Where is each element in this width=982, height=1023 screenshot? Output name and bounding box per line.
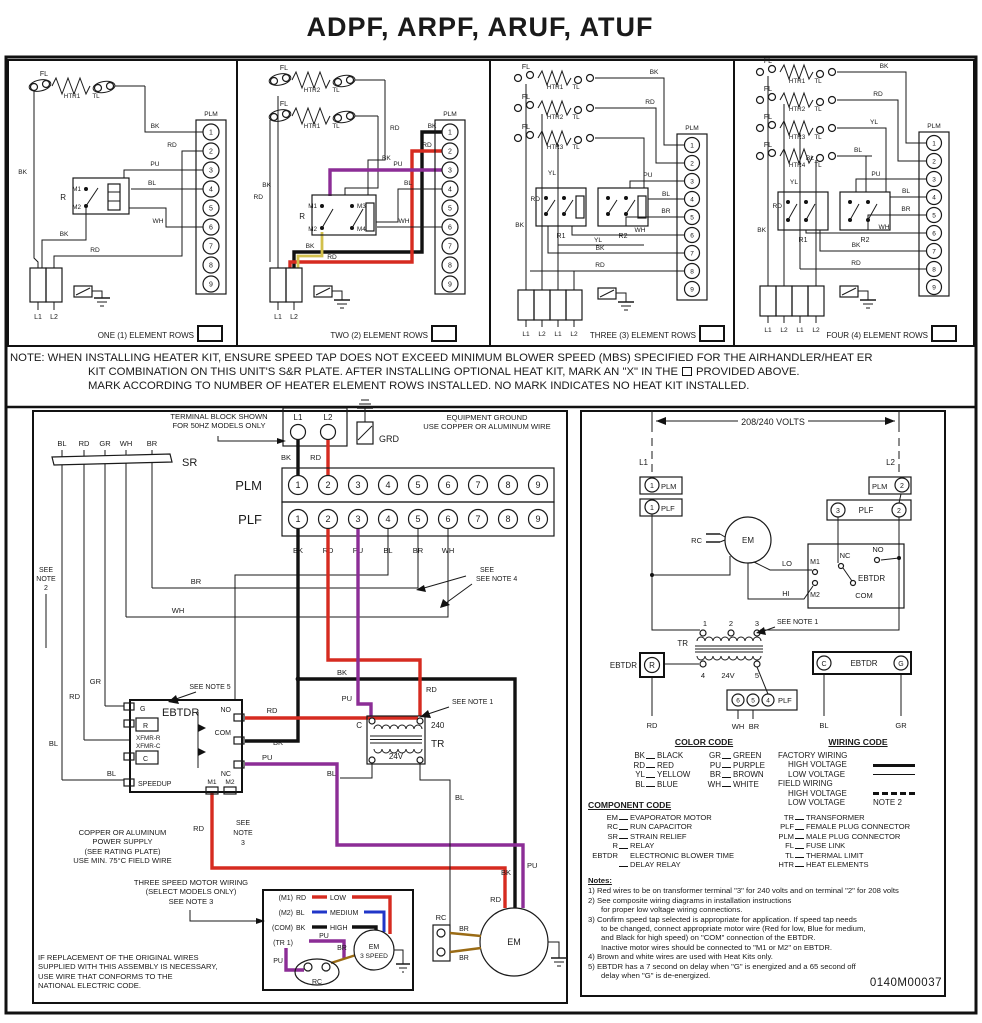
fuse-link-label: FL	[764, 58, 772, 65]
terminal-number: 4	[701, 671, 705, 680]
wiring-code-title: WIRING CODE	[778, 737, 938, 747]
wire-label: WH	[399, 218, 410, 225]
wire-label: RD	[253, 194, 263, 201]
component-name: RELAY	[630, 841, 654, 850]
wire-label: RD	[167, 142, 177, 149]
wire-label: BR	[459, 926, 469, 933]
ebtdr-label: EBTDR	[162, 707, 199, 719]
panel-one-element-rows: FL HTR1 TL BK BK RD PU BL WH BK RD	[18, 71, 226, 341]
fuse-link-label: FL	[280, 101, 288, 108]
speed-label: LOW	[330, 895, 346, 902]
plug-pin-number: 4	[690, 196, 694, 203]
component-abbr: FL	[768, 841, 794, 850]
color-name: BLACK	[657, 751, 704, 761]
notes-title: Notes:	[588, 876, 940, 885]
rc-label: RC	[691, 536, 702, 545]
wire-label: RD	[327, 254, 337, 261]
speed-terminal: (TR 1)	[273, 940, 293, 947]
c-label: C	[821, 661, 826, 668]
three-speed-caption-line: THREE SPEED MOTOR WIRING	[115, 878, 267, 887]
plm-plugs: 123456789	[927, 136, 942, 295]
note-line1: NOTE: WHEN INSTALLING HEATER KIT, ENSURE…	[10, 351, 972, 365]
wire-label: RD	[90, 247, 100, 254]
wire-label: RD	[595, 262, 605, 269]
lo-label: LO	[782, 559, 792, 568]
color-name: BLUE	[657, 780, 704, 790]
plm-label: PLM	[685, 125, 699, 132]
equip-ground-line: USE COPPER OR ALUMINUM WIRE	[398, 422, 576, 431]
note-line2-text: KIT COMBINATION ON THIS UNIT'S S&R PLATE…	[88, 366, 678, 378]
l1-label: L1	[274, 314, 282, 321]
transformer: C 240 TR 24V	[356, 716, 445, 764]
wire-label: BL	[296, 910, 305, 917]
plug-pin-number: 5	[415, 514, 420, 524]
sample-factory-low	[873, 774, 915, 775]
color-abbr: BK	[628, 751, 645, 761]
line-terminals: L1 L2	[270, 268, 302, 321]
heater-kit-note: NOTE: WHEN INSTALLING HEATER KIT, ENSURE…	[10, 351, 972, 393]
heater-rows: FL HTR1 TL FL HTR2 TL FL HTR3 TL	[515, 64, 641, 151]
note-item: 2) See composite wiring diagrams in inst…	[588, 896, 940, 915]
wire-label: BR	[459, 955, 469, 962]
l2-label: L2	[538, 331, 546, 338]
wire-label: YL	[790, 179, 798, 186]
plug-pin-number: 5	[932, 212, 936, 219]
mark-checkbox-glyph	[682, 367, 692, 376]
em-label: EM	[507, 937, 521, 947]
terminal-number: 1	[703, 619, 707, 628]
fuse-link-label: FL	[40, 71, 48, 78]
wire-label: RD	[69, 692, 80, 701]
thermal-limit-label: TL	[814, 106, 822, 113]
replacement-line: NATIONAL ELECTRIC CODE.	[38, 981, 248, 990]
plug-pin-number: 8	[505, 480, 510, 490]
ground-symbol	[74, 286, 110, 306]
wire-label: BK	[18, 169, 27, 176]
l1-label: L1	[764, 327, 772, 334]
heater-label: HTR3	[789, 134, 806, 141]
wire-label: RD	[426, 685, 437, 694]
wire-label: RD	[851, 260, 861, 267]
wire-label: BL	[107, 769, 116, 778]
document-number: 0140M00037	[826, 977, 942, 989]
relay-label: R	[60, 193, 66, 202]
hi-label: HI	[782, 589, 790, 598]
plug-pin-number: 6	[448, 225, 452, 232]
plm-row-label: PLM	[235, 478, 262, 493]
heater-row: FL HTR2 TL	[268, 65, 385, 94]
volts-label: 208/240 VOLTS	[741, 417, 805, 427]
replacement-line: SUPPLIED WITH THIS ASSEMBLY IS NECESSARY…	[38, 962, 248, 971]
terminal-m2: M2	[225, 779, 234, 786]
ground-symbol	[314, 286, 350, 308]
plug-pin-number: 4	[932, 194, 936, 201]
plug-pin-number: 1	[209, 130, 213, 137]
speed-terminal: (M2)	[279, 910, 293, 917]
terminal-m1: M1	[207, 779, 216, 786]
plm-label: PLM	[927, 123, 941, 130]
component-abbr: PLM	[768, 832, 794, 841]
wire-label: WH	[153, 218, 164, 225]
speed-terminal: (M1)	[279, 895, 293, 902]
ebtdr-switch-box: M1 M2 NC NO EBTDR COM	[808, 544, 904, 608]
wire-label: BR	[413, 546, 424, 555]
plm-plug-row: 123456789	[289, 476, 548, 495]
wire-label: BK	[273, 738, 283, 747]
relay-label: R	[299, 212, 305, 221]
wire-label: BR	[147, 439, 158, 448]
l2-label: L2	[812, 327, 820, 334]
relay-terminal-label: M1	[308, 203, 317, 210]
l2-label: L2	[324, 413, 333, 422]
ebtdr-r-box: R EBTDR	[610, 653, 664, 677]
plm-connector: PLM 123456789	[435, 111, 465, 294]
plug-pin-number: 6	[209, 225, 213, 232]
run-capacitor-label: RC	[312, 979, 322, 986]
plug-pin-number: 7	[690, 250, 694, 257]
plug-pin-number: 6	[736, 697, 740, 704]
note-line2: KIT COMBINATION ON THIS UNIT'S S&R PLATE…	[10, 365, 972, 379]
wiring-code-row: FACTORY WIRING	[778, 751, 873, 760]
relay-label: R1	[557, 233, 566, 240]
plug-pin-number: 6	[932, 230, 936, 237]
transformer-24v-label: 24V	[389, 752, 404, 761]
panel1-wires	[34, 86, 203, 268]
diagram-canvas: FL HTR1 TL BK BK RD PU BL WH BK RD	[0, 0, 982, 1023]
component-abbr: TL	[768, 851, 794, 860]
color-name: BROWN	[733, 770, 780, 780]
sample-factory-high	[873, 764, 915, 767]
thermal-limit-label: TL	[332, 87, 340, 94]
wire-label: GR	[90, 677, 102, 686]
plug-pin-number: 9	[932, 284, 936, 291]
relay: R M1 M3 M2 M4	[299, 195, 376, 235]
plug-pin-number: 1	[690, 142, 694, 149]
three-speed-motor-box: (M1) RD LOW (M2) BL MEDIUM (COM) BK HIGH…	[263, 890, 413, 990]
component-abbr: SR	[588, 832, 618, 841]
plf-label: PLF	[859, 506, 874, 515]
color-abbr: BL	[628, 780, 645, 790]
l2-label: L2	[570, 331, 578, 338]
component-abbr: HTR	[768, 860, 794, 869]
plug-pin-number: 5	[209, 206, 213, 213]
element-rows-checkbox[interactable]	[932, 326, 956, 341]
wire-label: BK	[650, 69, 659, 76]
plug-pin-number: 6	[690, 232, 694, 239]
element-rows-checkbox[interactable]	[198, 326, 222, 341]
wire-label: BK	[880, 63, 889, 70]
note-line2-text: PROVIDED ABOVE.	[696, 366, 800, 378]
panel-caption: FOUR (4) ELEMENT ROWS	[826, 331, 928, 340]
right-schematic: 208/240 VOLTS L1 L2 1 PLM 1 PLF 2 PLM 3 …	[610, 410, 911, 731]
wire-label: RD	[873, 91, 883, 98]
l2-label: L2	[886, 458, 895, 467]
component-code-left: EMEVAPORATOR MOTOR RCRUN CAPACITOR SRSTR…	[588, 813, 766, 869]
plug-pin-number: 4	[209, 187, 213, 194]
see-note-2: 2	[44, 585, 48, 592]
component-code-title: COMPONENT CODE	[588, 800, 708, 810]
power-supply-line: USE MIN. 75°C FIELD WIRE	[50, 856, 195, 865]
thermal-limit-label: TL	[92, 93, 100, 100]
wire-label: RD	[79, 439, 90, 448]
plm-connector: PLM 123456789	[677, 125, 707, 300]
plug-pin-number: 9	[535, 514, 540, 524]
wire-label: BK	[306, 243, 315, 250]
note-item: 3) Confirm speed tap selected is appropr…	[588, 915, 940, 953]
plug-pin-number: 8	[209, 263, 213, 270]
grd-label: GRD	[379, 434, 400, 444]
component-name: TRANSFORMER	[806, 813, 865, 822]
relay-label: R2	[619, 233, 628, 240]
plug-pin-number: 3	[355, 514, 360, 524]
wire-label: PU	[871, 171, 880, 178]
panel-caption: THREE (3) ELEMENT ROWS	[590, 331, 696, 340]
speed-label: HIGH	[330, 925, 348, 932]
em-label: EM	[742, 536, 754, 545]
wire-label: RD	[645, 99, 655, 106]
wire-label: WH	[120, 439, 133, 448]
thermal-limit-label: TL	[572, 84, 580, 91]
plug-pin-number: 6	[445, 514, 450, 524]
heater-label: HTR4	[789, 162, 806, 169]
terminal-note-line: TERMINAL BLOCK SHOWN	[158, 412, 280, 421]
three-speed-caption: THREE SPEED MOTOR WIRING (SELECT MODELS …	[115, 878, 267, 906]
thermal-limit-label: TL	[814, 134, 822, 141]
wire-label: BK	[337, 668, 347, 677]
relay-terminal-label: M2	[308, 226, 317, 233]
component-name: ELECTRONIC BLOWER TIME DELAY RELAY	[630, 851, 734, 870]
m1-label: M1	[810, 559, 820, 566]
terminal-number: 2	[729, 619, 733, 628]
line-terminals: L1 L2 L1 L2	[518, 290, 582, 338]
power-supply-note: COPPER OR ALUMINUM POWER SUPPLY (SEE RAT…	[50, 828, 195, 865]
l1-label: L1	[34, 314, 42, 321]
wire-label: BK	[151, 123, 160, 130]
wire-label: BL	[383, 546, 392, 555]
wire-label: GR	[99, 439, 111, 448]
wiring-diagram-page: ADPF, ARPF, ARUF, ATUF FL HTR1 TL	[0, 0, 982, 1023]
plug-pin-number: 2	[325, 480, 330, 490]
panel3-wires	[526, 78, 684, 290]
wiring-code-row: FIELD WIRING	[778, 779, 873, 788]
wire-label: BL	[662, 191, 670, 198]
plug-pin-number: 2	[932, 158, 936, 165]
heater-label: HTR1	[547, 84, 564, 91]
component-name: STRAIN RELIEF	[630, 832, 687, 841]
component-abbr: EM	[588, 813, 618, 822]
plug-pin-number: 1	[295, 480, 300, 490]
note-item: 4) Brown and white wires are used with H…	[588, 952, 940, 961]
transformer-c-label: C	[356, 721, 362, 730]
plug-pin-number: 3	[932, 176, 936, 183]
sample-field-high	[873, 792, 915, 795]
color-abbr: BR	[704, 770, 721, 780]
wire-label: RD	[490, 895, 501, 904]
component-abbr: TR	[768, 813, 794, 822]
ground-symbol	[840, 286, 876, 308]
see-note-3: NOTE	[233, 830, 253, 837]
l2-label: L2	[50, 314, 58, 321]
evaporator-motor: EM RC BR BR	[433, 908, 567, 976]
wire-label: BK	[60, 231, 69, 238]
power-supply-line: COPPER OR ALUMINUM	[50, 828, 195, 837]
panel-four-element-rows: FL HTR1 TL FL HTR2 TL FL HTR3 TL FL HTR4	[757, 58, 957, 341]
wire-label: BL	[806, 155, 814, 162]
terminal-com: COM	[215, 730, 232, 737]
relay-label: R1	[799, 237, 808, 244]
plug-number: 2	[900, 483, 904, 490]
note-line3: MARK ACCORDING TO NUMBER OF HEATER ELEME…	[10, 379, 972, 393]
ebtdr-label: EBTDR	[850, 659, 877, 668]
plug-pin-number: 2	[325, 514, 330, 524]
color-name: YELLOW	[657, 770, 704, 780]
plm-plugs: 123456789	[685, 138, 700, 297]
component-name: FEMALE PLUG CONNECTOR	[806, 822, 910, 831]
color-name: RED	[657, 761, 704, 771]
terminal-c: C	[143, 756, 148, 763]
see-note-5: SEE NOTE 5	[189, 684, 230, 691]
ebtdr-relay: EBTDR G R XFMR-R XFMR-C C SPEEDUP M1 M2 …	[124, 700, 244, 794]
relay-terminal-label: M3	[357, 203, 366, 210]
l1-label: L1	[554, 331, 562, 338]
three-speed-caption-line: SEE NOTE 3	[115, 897, 267, 906]
wire-label: BK	[262, 182, 271, 189]
right-wires	[650, 494, 901, 719]
equipment-ground-note: EQUIPMENT GROUND USE COPPER OR ALUMINUM …	[398, 413, 576, 432]
speed-terminal: (COM)	[272, 925, 293, 932]
terminal-number: 3	[755, 619, 759, 628]
r-label: R	[649, 661, 655, 670]
component-abbr: R	[588, 841, 618, 850]
ebtdr-label: EBTDR	[858, 574, 885, 583]
color-abbr: PU	[704, 761, 721, 771]
replacement-line: IF REPLACEMENT OF THE ORIGINAL WIRES	[38, 953, 248, 962]
plf-label: PLF	[661, 504, 675, 513]
equip-ground-line: EQUIPMENT GROUND	[398, 413, 576, 422]
see-note-2: NOTE	[36, 576, 56, 583]
plug-pin-number: 7	[448, 244, 452, 251]
heater-label: HTR2	[789, 106, 806, 113]
plug-pin-number: 3	[209, 168, 213, 175]
heater-label: HTR2	[304, 87, 321, 94]
heater-row: FL HTR1 TL	[268, 101, 378, 130]
plug-pin-number: 8	[932, 266, 936, 273]
wire-label: BR	[901, 206, 910, 213]
terminal-xfmr-r: XFMR-R	[136, 735, 161, 742]
wiring-code-note2: NOTE 2	[873, 798, 902, 807]
em-3speed-label: EM	[369, 944, 380, 951]
wire-label: GR	[895, 721, 907, 730]
component-name: MALE PLUG CONNECTOR	[806, 832, 900, 841]
color-abbr: GR	[704, 751, 721, 761]
plug-pin-number: 2	[448, 149, 452, 156]
plug-pin-number: 1	[295, 514, 300, 524]
wire-label: WH	[732, 722, 745, 731]
see-note-4: SEE	[480, 567, 494, 574]
element-rows-checkbox[interactable]	[700, 326, 724, 341]
thermal-limit-label: TL	[814, 78, 822, 85]
24v-label: 24V	[721, 671, 734, 680]
l2-label: L2	[780, 327, 788, 334]
plm-label: PLM	[443, 111, 457, 118]
plug-pin-number: 2	[209, 149, 213, 156]
component-name: THERMAL LIMIT	[806, 851, 864, 860]
element-rows-checkbox[interactable]	[432, 326, 456, 341]
run-capacitor: RC	[691, 534, 725, 545]
terminal-g: G	[140, 706, 145, 713]
wire-label: RD	[267, 706, 278, 715]
plug-pin-number: 8	[448, 263, 452, 270]
replacement-wire-note: IF REPLACEMENT OF THE ORIGINAL WIRES SUP…	[38, 953, 248, 990]
wire-label: BK	[382, 155, 391, 162]
plug-pin-number: 5	[751, 697, 755, 704]
plug-pin-number: 3	[355, 480, 360, 490]
terminal-nc: NC	[221, 771, 231, 778]
field-wires	[46, 450, 448, 780]
relay: R1	[536, 188, 586, 240]
plm-label: PLM	[204, 111, 218, 118]
wiring-code-row: HIGH VOLTAGE	[778, 789, 873, 798]
relay-terminal-label: M4	[357, 226, 366, 233]
wire-label: PU	[273, 958, 283, 965]
plug-pin-number: 7	[475, 514, 480, 524]
plm-plugs: 123456789	[203, 124, 219, 292]
plug-number: 2	[897, 508, 901, 515]
power-supply-line: (SEE RATING PLATE)	[50, 847, 195, 856]
em-3speed-label: 3 SPEED	[360, 953, 388, 960]
heater-row: FL HTR1 TL	[28, 71, 145, 100]
wire-label: PU	[643, 172, 652, 179]
wire-label: BK	[501, 868, 511, 877]
fuse-link-label: FL	[280, 65, 288, 72]
component-name: RUN CAPACITOR	[630, 822, 692, 831]
strain-relief: SR	[52, 454, 197, 469]
heater-label: HTR1	[304, 123, 321, 130]
wire-label: BL	[327, 769, 336, 778]
wire-label: BL	[854, 147, 862, 154]
wire-label: BL	[404, 180, 412, 187]
power-supply-line: POWER SUPPLY	[50, 837, 195, 846]
plug-number: 1	[650, 505, 654, 512]
wire-label: BR	[661, 208, 670, 215]
com-label: COM	[855, 591, 873, 600]
plug-pin-number: 3	[448, 168, 452, 175]
component-code-title-wrap: COMPONENT CODE	[588, 800, 708, 814]
see-note-2: SEE	[39, 567, 53, 574]
heater-label: HTR1	[789, 78, 806, 85]
wire-label: YL	[548, 170, 556, 177]
l1-label: L1	[796, 327, 804, 334]
fuse-link-label: FL	[522, 64, 530, 71]
plm-label: PLM	[872, 482, 887, 491]
wire-label: RD	[296, 895, 306, 902]
wire-label: BL	[49, 739, 58, 748]
thermal-limit-label: TL	[332, 123, 340, 130]
wire-label: RD	[530, 196, 540, 203]
thermal-limit-label: TL	[572, 144, 580, 151]
plug-pin-number: 5	[448, 206, 452, 213]
color-name: GREEN	[733, 751, 780, 761]
transformer-240-label: 240	[431, 721, 445, 730]
speed-label: MEDIUM	[330, 910, 359, 917]
wire-label: PU	[319, 933, 329, 940]
wiring-code-legend: WIRING CODE FACTORY WIRING HIGH VOLTAGE …	[778, 737, 938, 807]
wire-label: YL	[594, 237, 602, 244]
heater-label: HTR1	[64, 93, 81, 100]
color-code-legend: COLOR CODE BKBLACKGRGREEN RDREDPUPURPLE …	[628, 737, 780, 789]
see-note-3: 3	[241, 840, 245, 847]
wire-label: BK	[296, 925, 306, 932]
